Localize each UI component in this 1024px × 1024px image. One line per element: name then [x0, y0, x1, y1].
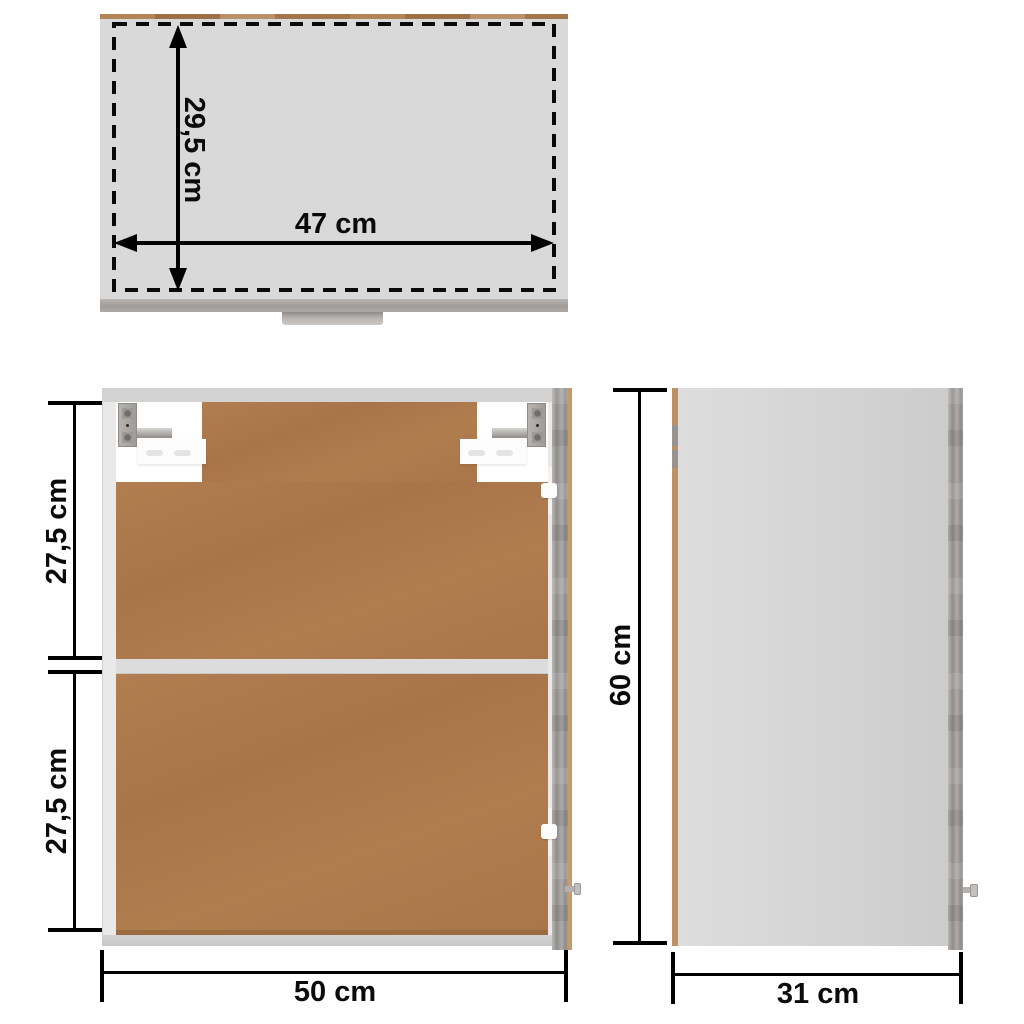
- door-handle-cap: [574, 883, 581, 895]
- side-door-handle-cap: [970, 884, 978, 897]
- side-view: [672, 388, 980, 952]
- cabinet-frame-bottom: [102, 935, 552, 946]
- dim-tick: [48, 928, 102, 932]
- side-panel: [678, 388, 948, 946]
- bracket-slot: [468, 450, 485, 456]
- width-dimension-label: 47 cm: [261, 210, 411, 238]
- dim-tick: [100, 950, 104, 1002]
- screw-icon: [122, 408, 133, 419]
- dim-line: [73, 403, 76, 659]
- dim-line: [673, 973, 963, 976]
- back-panel-lower: [116, 674, 548, 930]
- dim-tick: [959, 952, 963, 1004]
- dim-tick: [564, 950, 568, 1002]
- arrow-right-icon: [531, 234, 554, 252]
- bracket-rail: [137, 428, 172, 438]
- door-edge: [552, 388, 568, 950]
- product-dimension-diagram: 29,5 cm 47 cm: [0, 0, 1024, 1024]
- bracket-clip: [460, 439, 527, 464]
- front-upper-label: 27,5 cm: [43, 466, 71, 596]
- pin-hole-icon: [536, 424, 539, 427]
- side-height-label: 60 cm: [607, 600, 635, 730]
- side-door-edge: [948, 388, 963, 950]
- side-depth-label: 31 cm: [738, 980, 898, 1008]
- bracket-slot: [146, 450, 163, 456]
- back-panel-upper-strip: [202, 402, 477, 482]
- front-lower-label: 27,5 cm: [43, 736, 71, 866]
- top-view: 29,5 cm 47 cm: [100, 14, 568, 326]
- arrow-up-icon: [169, 25, 187, 48]
- arrow-left-icon: [114, 234, 137, 252]
- dim-tick: [48, 401, 102, 405]
- cabinet-frame-top: [102, 388, 552, 402]
- dim-line: [73, 672, 76, 930]
- door-back-edge: [568, 388, 572, 950]
- top-view-door-edge: [100, 299, 568, 312]
- hinge-top-knob: [541, 483, 557, 498]
- screw-icon: [122, 432, 133, 443]
- dim-line: [102, 971, 568, 974]
- top-view-handle: [282, 312, 383, 325]
- bracket-rail: [492, 428, 527, 438]
- bracket-plate: [118, 403, 137, 447]
- depth-dimension-label: 29,5 cm: [180, 85, 208, 215]
- screw-icon: [532, 408, 543, 419]
- arrow-down-icon: [169, 268, 187, 291]
- dim-tick: [613, 388, 667, 392]
- screw-icon: [532, 432, 543, 443]
- bracket-plate: [527, 403, 546, 447]
- hinge-bottom-knob: [541, 824, 557, 839]
- pin-hole-icon: [126, 424, 129, 427]
- front-width-label: 50 cm: [255, 978, 415, 1006]
- dim-tick: [48, 670, 102, 674]
- middle-shelf: [116, 659, 548, 674]
- bracket-clip: [137, 439, 206, 464]
- back-panel-upper: [116, 482, 548, 659]
- dim-line: [638, 390, 641, 943]
- bracket-slot: [496, 450, 513, 456]
- bracket-slot: [174, 450, 191, 456]
- dim-tick: [671, 952, 675, 1004]
- dim-tick: [48, 656, 102, 660]
- width-arrow-line: [134, 241, 534, 245]
- dim-tick: [613, 941, 667, 945]
- front-view: [102, 388, 574, 952]
